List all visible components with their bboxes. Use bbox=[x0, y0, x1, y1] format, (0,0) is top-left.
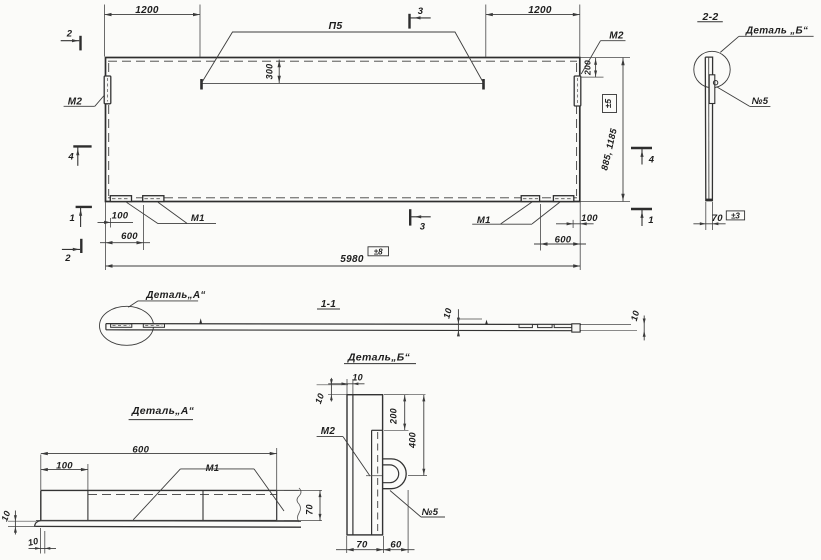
svg-text:М2: М2 bbox=[609, 31, 624, 42]
svg-text:200: 200 bbox=[582, 60, 592, 76]
svg-text:П5: П5 bbox=[329, 20, 343, 32]
svg-text:±8: ±8 bbox=[374, 247, 383, 256]
svg-text:1: 1 bbox=[70, 213, 76, 224]
svg-text:2-2: 2-2 bbox=[701, 11, 718, 23]
svg-text:±3: ±3 bbox=[731, 211, 740, 220]
svg-text:1200: 1200 bbox=[135, 5, 159, 16]
svg-text:10: 10 bbox=[352, 372, 363, 382]
svg-text:5980: 5980 bbox=[340, 254, 364, 265]
svg-text:Деталь„А“: Деталь„А“ bbox=[145, 290, 205, 301]
svg-text:2: 2 bbox=[64, 253, 71, 264]
svg-text:М2: М2 bbox=[321, 426, 336, 437]
svg-text:3: 3 bbox=[418, 6, 424, 17]
svg-text:Деталь„Б“: Деталь„Б“ bbox=[347, 351, 411, 363]
svg-text:600: 600 bbox=[555, 234, 572, 245]
svg-text:Деталь „Б“: Деталь „Б“ bbox=[745, 26, 808, 37]
svg-text:300: 300 bbox=[264, 64, 274, 80]
svg-text:70: 70 bbox=[712, 213, 724, 224]
svg-text:М1: М1 bbox=[206, 463, 220, 474]
svg-text:М1: М1 bbox=[191, 213, 205, 224]
svg-text:3: 3 bbox=[420, 222, 426, 233]
svg-text:400: 400 bbox=[407, 432, 417, 449]
svg-text:Деталь„А“: Деталь„А“ bbox=[131, 405, 195, 417]
svg-text:100: 100 bbox=[581, 213, 598, 224]
svg-text:1-1: 1-1 bbox=[321, 299, 336, 310]
svg-text:100: 100 bbox=[56, 461, 73, 472]
svg-text:±5: ±5 bbox=[603, 99, 613, 109]
svg-text:№5: №5 bbox=[422, 507, 439, 518]
svg-text:4: 4 bbox=[67, 151, 74, 162]
svg-text:600: 600 bbox=[132, 445, 149, 456]
svg-text:2: 2 bbox=[66, 28, 73, 39]
svg-text:70: 70 bbox=[304, 504, 314, 515]
svg-text:60: 60 bbox=[390, 539, 402, 550]
svg-text:№5: №5 bbox=[752, 96, 769, 107]
svg-text:4: 4 bbox=[648, 154, 655, 165]
svg-text:70: 70 bbox=[356, 539, 368, 550]
svg-text:100: 100 bbox=[112, 211, 129, 222]
svg-text:1200: 1200 bbox=[528, 5, 552, 16]
svg-text:600: 600 bbox=[121, 231, 138, 242]
svg-text:1: 1 bbox=[648, 215, 654, 226]
svg-text:М2: М2 bbox=[68, 97, 83, 108]
svg-text:200: 200 bbox=[389, 408, 399, 425]
